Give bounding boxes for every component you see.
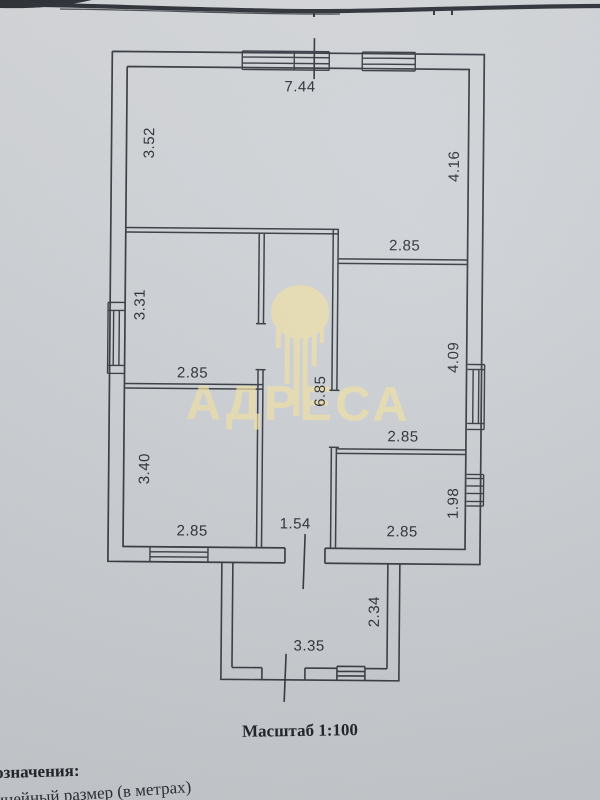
dimension-label-room2-height: 4.09 [445,342,462,373]
wall-between-right-rooms [337,449,466,455]
floor-plan-drawing: АДРЕСА [0,0,600,800]
dimension-label-room4-height: 1.98 [445,488,462,519]
dimension-label-room1-height: 3.31 [131,289,148,320]
dimension-label-living-left-height: 3.52 [141,127,158,158]
hall-door-dimension-tick [303,534,305,589]
dimension-label-room3-width: 2.85 [176,522,207,539]
dimension-label-hallway-length: 6.85 [312,376,329,407]
wall-under-living-right [338,259,467,265]
watermark-text: АДРЕСА [186,376,411,432]
dimension-label-porch-height: 2.34 [366,596,383,627]
dimension-label-porch-width: 3.35 [293,637,324,654]
dimension-label-living-right-height: 4.16 [446,151,463,182]
porch-door-dimension-tick [284,654,286,702]
bottom-window-symbol [150,547,208,563]
dimension-label-room3-height: 3.40 [136,453,153,484]
dimension-label-top-width: 7.44 [284,78,315,95]
wall-under-living-left [126,227,339,233]
floor-plan: АДРЕСА 7.44 3.52 4.16 2.85 3.31 2.85 4.0… [0,0,600,800]
dimension-label-room2-width: 2.85 [387,428,418,445]
watermark: АДРЕСА [186,284,412,432]
porch-window-symbol [337,666,365,680]
scanned-floor-plan-page: АДРЕСА 7.44 3.52 4.16 2.85 3.31 2.85 4.0… [0,0,600,800]
dimension-label-hallway-width: 1.54 [280,515,311,532]
dimension-label-room4-width: 2.85 [386,523,417,540]
dimension-label-room1-width: 2.85 [177,364,208,381]
dimension-label-living-right-width: 2.85 [389,237,420,254]
legend-heading-cutoff: означения: [0,761,80,783]
